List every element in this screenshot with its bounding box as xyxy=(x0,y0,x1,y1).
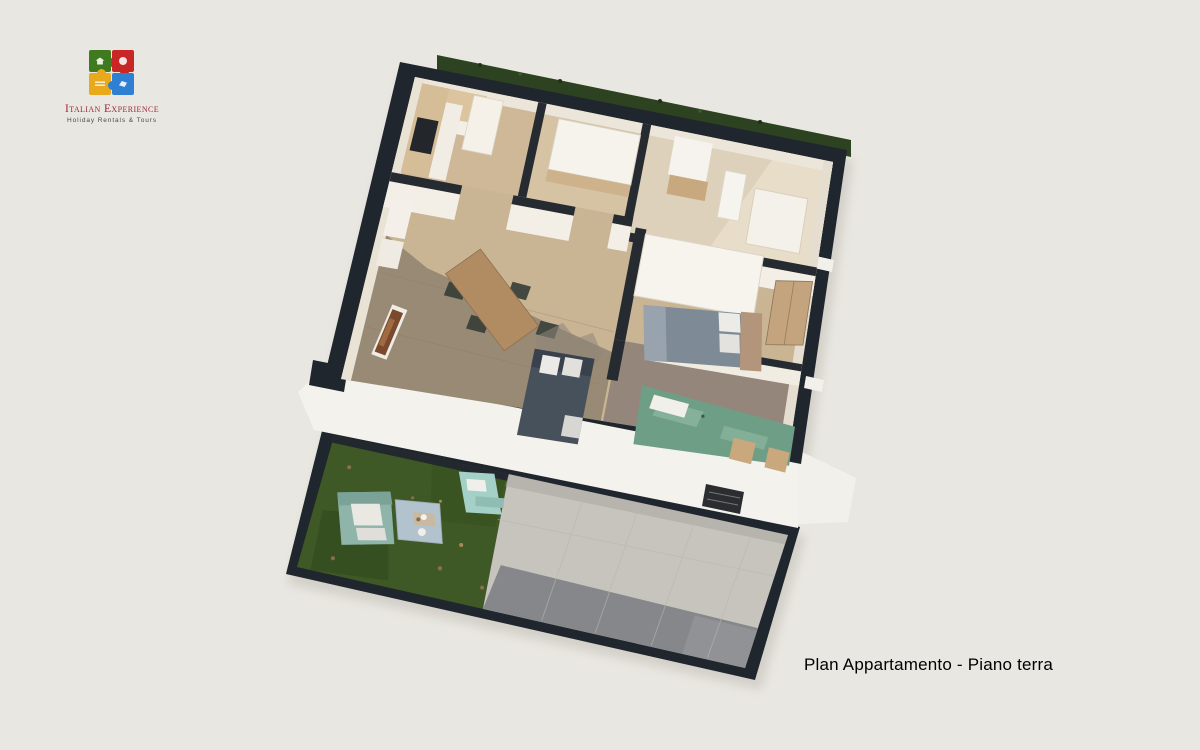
lounge-pillow xyxy=(466,479,486,492)
plan-caption: Plan Appartamento - Piano terra xyxy=(804,655,1053,675)
bench-cushion xyxy=(356,528,387,541)
hedge-speckle xyxy=(518,72,521,75)
sofa-pillow xyxy=(562,357,583,378)
logo-puzzle-blue-piece xyxy=(112,73,134,95)
table-food xyxy=(416,517,420,521)
table-teapot xyxy=(421,514,427,520)
hedge-speckle xyxy=(758,120,762,124)
table-plate xyxy=(418,528,426,536)
headboard xyxy=(740,312,762,372)
hedge-speckle xyxy=(478,63,482,67)
grass-speckle xyxy=(438,566,442,570)
grass-speckle xyxy=(411,496,414,499)
hedge-speckle xyxy=(558,79,562,83)
bed-fold xyxy=(643,305,666,362)
bench-cushion xyxy=(351,504,383,526)
bathroom-vanity-top xyxy=(668,136,713,182)
logo: Italian Experience Holiday Rentals & Tou… xyxy=(52,50,172,124)
facade-right-wedge xyxy=(798,450,856,524)
grass-speckle xyxy=(480,586,484,590)
grass-speckle xyxy=(331,556,335,560)
logo-puzzle xyxy=(89,50,135,96)
hedge-speckle xyxy=(698,109,701,112)
page: Italian Experience Holiday Rentals & Tou… xyxy=(0,0,1200,750)
logo-title: Italian Experience xyxy=(52,103,172,115)
sofa-pillow xyxy=(539,355,560,376)
shower-tray xyxy=(746,188,808,253)
logo-puzzle-red-piece xyxy=(112,50,134,72)
bed-pillow xyxy=(719,312,741,332)
outdoor-bench-back xyxy=(337,492,392,506)
kitchenette-faucet xyxy=(701,415,704,418)
grass-speckle xyxy=(439,500,442,503)
floorplan-render xyxy=(0,0,1200,750)
grass-speckle xyxy=(459,543,463,547)
hedge-speckle xyxy=(658,99,662,103)
grass-speckle xyxy=(347,465,351,469)
bed-pillow xyxy=(719,334,740,354)
logo-tagline: Holiday Rentals & Tours xyxy=(52,117,172,124)
